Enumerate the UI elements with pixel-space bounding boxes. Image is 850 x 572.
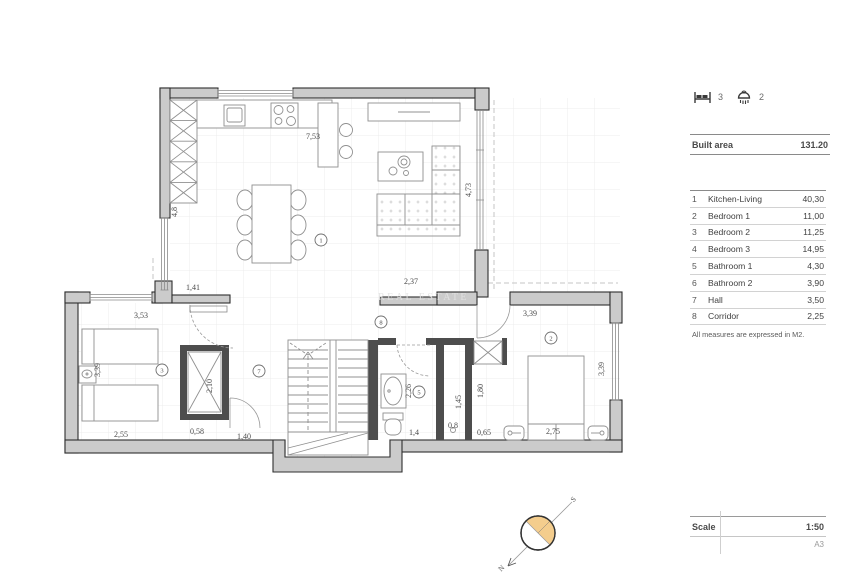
bathroom-vanity bbox=[381, 374, 406, 408]
svg-text:3: 3 bbox=[160, 368, 163, 375]
dimension-label: 4,8 bbox=[170, 207, 179, 217]
toilet bbox=[383, 413, 403, 435]
room-row: 3 Bedroom 2 11,25 bbox=[690, 225, 826, 242]
svg-text:8: 8 bbox=[379, 320, 382, 327]
dimension-label: 2,75 bbox=[546, 427, 560, 436]
dimension-label: 1,40 bbox=[237, 432, 251, 441]
compass-north-label: N bbox=[496, 563, 507, 572]
room-row: 2 Bedroom 1 11,00 bbox=[690, 208, 826, 225]
coffee-table bbox=[378, 152, 423, 181]
kitchen-top-window bbox=[218, 89, 293, 98]
built-area-value: 131.20 bbox=[800, 140, 828, 150]
stool bbox=[340, 146, 353, 159]
room-marker: 3 bbox=[156, 364, 168, 376]
dimension-label: 2,55 bbox=[114, 430, 128, 439]
kitchen-sink bbox=[224, 105, 245, 126]
dimension-label: 0,58 bbox=[190, 427, 204, 436]
bedrooms-count: 3 bbox=[718, 92, 723, 102]
kitchen-left-window bbox=[161, 218, 169, 290]
dimension-label: 7,53 bbox=[306, 132, 320, 141]
dimension-label: 3,53 bbox=[134, 311, 148, 320]
dimension-label: 3,39 bbox=[523, 309, 537, 318]
nightstand bbox=[588, 426, 608, 440]
summary-icons: 3 2 bbox=[694, 86, 826, 108]
dimension-label: 1,80 bbox=[476, 384, 485, 398]
kitchen-counter bbox=[197, 100, 332, 128]
room-marker: 7 bbox=[253, 365, 265, 377]
kitchen-hob bbox=[271, 103, 298, 128]
room-row: 7 Hall 3,50 bbox=[690, 292, 826, 309]
room-row: 5 Bathroom 1 4,30 bbox=[690, 258, 826, 275]
dimension-label: 2,26 bbox=[404, 384, 413, 398]
compass-south-label: S bbox=[569, 495, 578, 504]
sheet-size: A3 bbox=[690, 537, 826, 549]
dimension-label: 1,4 bbox=[409, 428, 419, 437]
storage-column bbox=[170, 100, 197, 203]
scale-block: Scale 1:50 A3 bbox=[690, 516, 826, 549]
svg-text:5: 5 bbox=[417, 390, 420, 397]
bed-single bbox=[82, 329, 158, 364]
room-row: 6 Bathroom 2 3,90 bbox=[690, 275, 826, 292]
floor-plan: REAL ESTATE 7,53 4,8 4,73 2,37 1,41 3,53… bbox=[0, 0, 690, 572]
kitchen-island bbox=[318, 103, 338, 167]
measures-note: All measures are expressed in M2. bbox=[692, 330, 828, 339]
dimension-label: 1,41 bbox=[186, 283, 200, 292]
bathrooms-count: 2 bbox=[759, 92, 764, 102]
room-table: 1 Kitchen-Living 40,30 2 Bedroom 1 11,00… bbox=[690, 190, 826, 325]
room-marker: 5 bbox=[413, 386, 425, 398]
bed-icon bbox=[694, 91, 711, 104]
dimension-label: 2,10 bbox=[205, 379, 214, 393]
room-row: 4 Bedroom 3 14,95 bbox=[690, 241, 826, 258]
room-marker: 8 bbox=[375, 316, 387, 328]
room-marker: 2 bbox=[545, 332, 557, 344]
bedroom1-window bbox=[612, 323, 620, 400]
built-area-label: Built area bbox=[692, 140, 733, 150]
dimension-label: 0,8 bbox=[448, 421, 458, 430]
room-row: 8 Corridor 2,25 bbox=[690, 309, 826, 326]
shower-icon bbox=[736, 90, 752, 105]
stairs bbox=[288, 340, 368, 455]
svg-text:2: 2 bbox=[549, 336, 552, 343]
bedroom2-window bbox=[90, 294, 152, 302]
floor-plan-sheet: REAL ESTATE 7,53 4,8 4,73 2,37 1,41 3,53… bbox=[0, 0, 850, 572]
living-right-window bbox=[476, 110, 484, 250]
svg-text:1: 1 bbox=[319, 238, 322, 245]
room-marker: 1 bbox=[315, 234, 327, 246]
wardrobe-bedroom1 bbox=[474, 341, 502, 364]
tv-cabinet bbox=[368, 103, 460, 121]
dining-table bbox=[237, 185, 306, 263]
dimension-label: 4,73 bbox=[464, 183, 473, 197]
dimension-label: 3,39 bbox=[597, 362, 606, 376]
dimension-label: 0,65 bbox=[477, 428, 491, 437]
dimension-label: 2,37 bbox=[404, 277, 418, 286]
watermark: REAL ESTATE bbox=[378, 292, 469, 303]
stool bbox=[340, 124, 353, 137]
scale-value: 1:50 bbox=[806, 522, 824, 532]
scale-divider bbox=[720, 511, 721, 554]
bed-single bbox=[82, 385, 158, 421]
compass: S N bbox=[496, 495, 578, 572]
scale-label: Scale bbox=[692, 522, 716, 532]
dimension-label: 1,45 bbox=[454, 395, 463, 409]
built-area-row: Built area 131.20 bbox=[690, 134, 830, 155]
dimension-label: 3,39 bbox=[93, 363, 102, 377]
nightstand bbox=[504, 426, 524, 440]
room-row: 1 Kitchen-Living 40,30 bbox=[690, 191, 826, 208]
